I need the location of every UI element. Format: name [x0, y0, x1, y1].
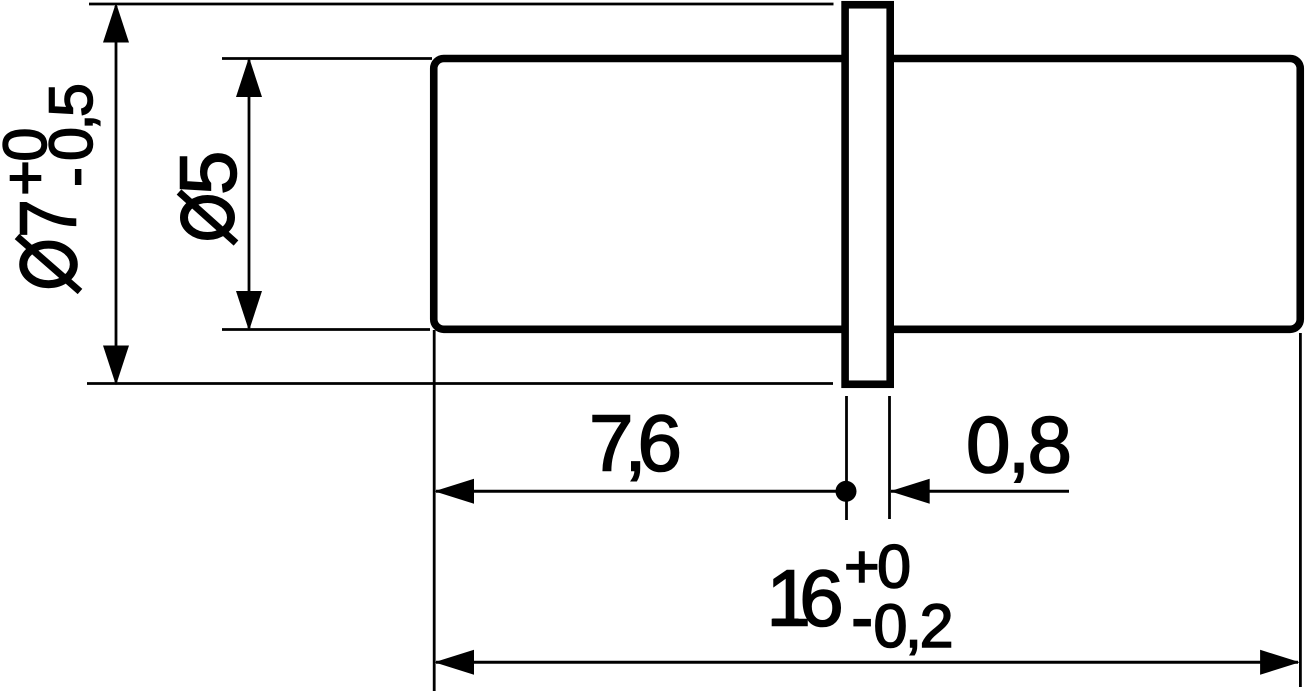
svg-text:0,2: 0,2 [874, 592, 954, 660]
svg-text:5: 5 [164, 151, 253, 196]
svg-text:+0: +0 [844, 533, 911, 601]
svg-text:7,6: 7,6 [589, 399, 682, 488]
svg-text:0,8: 0,8 [966, 400, 1072, 489]
svg-text:0,5: 0,5 [37, 83, 105, 161]
svg-text:7: 7 [4, 199, 93, 238]
svg-text:16: 16 [766, 554, 843, 643]
